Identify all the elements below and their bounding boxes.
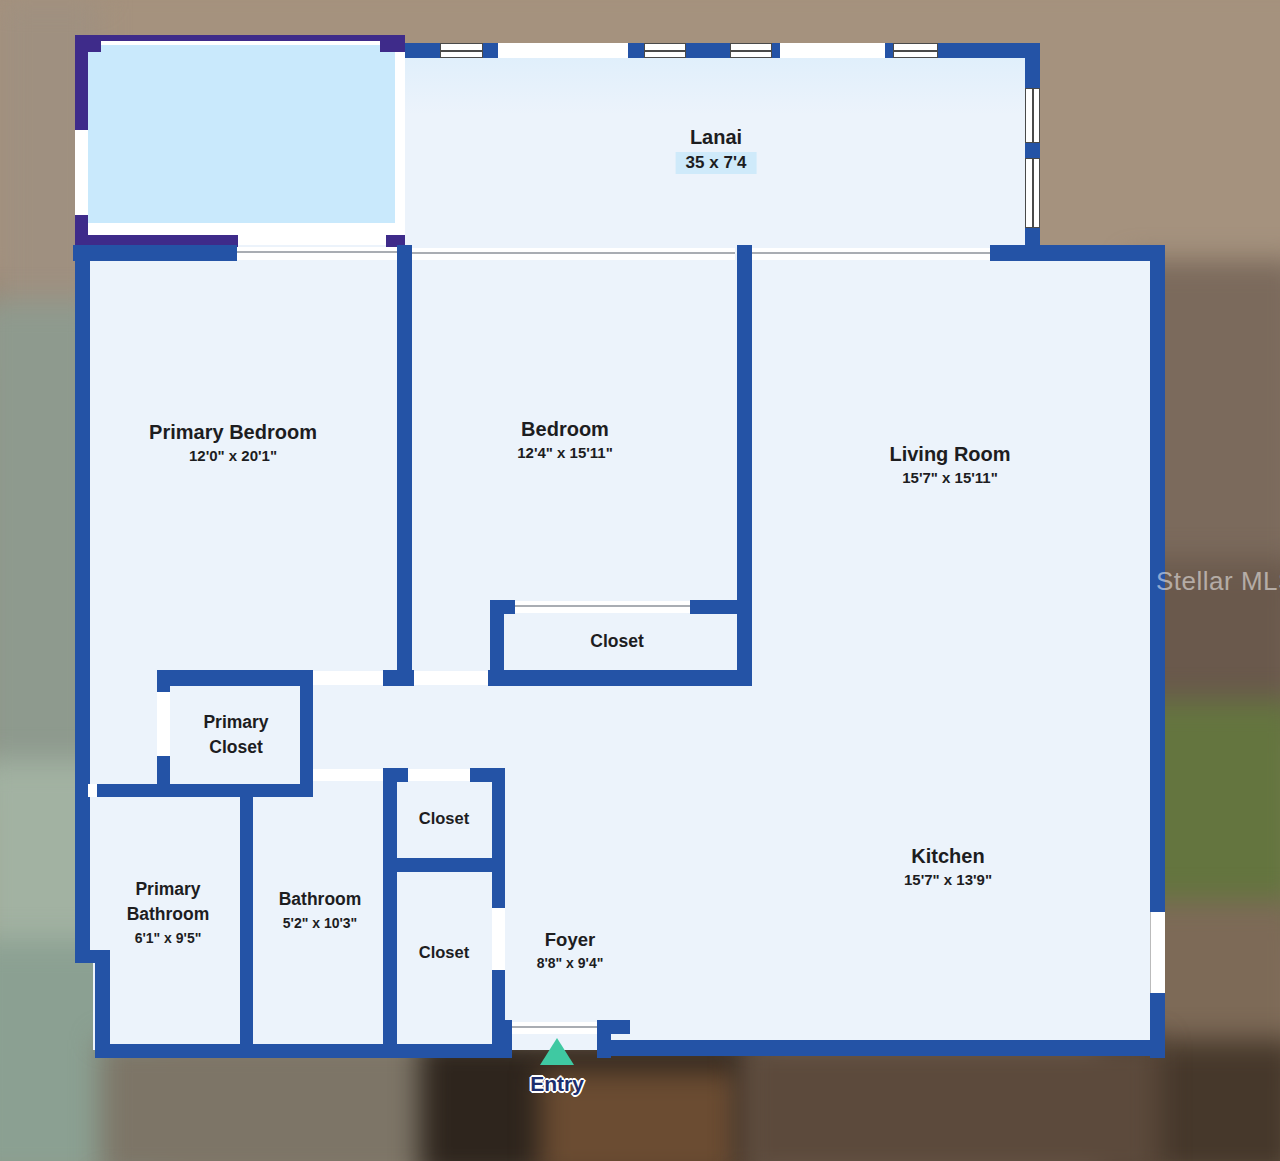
wall-segment (483, 43, 498, 58)
room-label-primary-bedroom: Primary Bedroom 12'0" x 20'1" (149, 420, 317, 467)
wall-segment (611, 1040, 1165, 1056)
room-name: Closet (419, 806, 469, 831)
room-label-bathroom: Bathroom 5'2" x 10'3" (279, 887, 362, 934)
room-name: Kitchen (904, 844, 992, 869)
patio-wall-segment (75, 35, 88, 130)
door-opening (408, 769, 470, 781)
room-label-hall-closet-upper: Closet (419, 806, 469, 831)
room-dims: 8'8" x 9'4" (537, 952, 604, 974)
door-opening (492, 908, 505, 970)
wall-segment (95, 1044, 512, 1058)
wall-segment (300, 670, 313, 797)
sliding-door (237, 247, 397, 260)
sliding-door (752, 248, 992, 260)
room-dims: 35 x 7'4 (676, 152, 757, 174)
room-name: Primary Closet (177, 710, 295, 760)
floorplan: Lanai 35 x 7'4 Primary Bedroom 12'0" x 2… (0, 0, 1280, 1161)
entry-arrow-icon (540, 1038, 574, 1065)
door-opening (414, 671, 488, 685)
wall-segment (990, 245, 1017, 261)
window (1025, 158, 1040, 228)
window (893, 43, 938, 58)
wall-segment (690, 600, 745, 614)
room-label-primary-bathroom: Primary Bathroom 6'1" x 9'5" (98, 877, 238, 949)
door-opening (88, 784, 97, 797)
window (730, 43, 772, 58)
room-dims: 12'0" x 20'1" (149, 445, 317, 467)
wall-segment (1025, 143, 1040, 158)
door-opening (313, 769, 383, 781)
room-label-primary-closet: Primary Closet (177, 710, 295, 760)
wall-segment (492, 768, 505, 872)
room-dims: 15'7" x 15'11" (889, 467, 1010, 489)
room-label-hall-closet-lower: Closet (419, 940, 469, 965)
wall-segment (737, 245, 752, 686)
sliding-door (412, 248, 735, 260)
room-name: Lanai (690, 125, 742, 150)
room-label-bedroom: Bedroom 12'4" x 15'11" (517, 417, 613, 464)
room-dims: 5'2" x 10'3" (279, 912, 362, 934)
room-dims: 12'4" x 15'11" (517, 442, 613, 464)
room-name: Closet (419, 940, 469, 965)
wall-segment (1025, 43, 1040, 88)
room-name: Bathroom (279, 887, 362, 912)
window (644, 43, 686, 58)
wall-segment (383, 768, 397, 1044)
wall-segment (488, 670, 752, 686)
wall-segment (686, 43, 730, 58)
room-label-bedroom-closet: Closet (590, 629, 643, 654)
wall-segment (492, 970, 505, 1044)
wall-segment (157, 784, 313, 797)
patio-wall-segment (75, 35, 405, 41)
entry-label: Entry (530, 1072, 584, 1096)
room-name: Foyer (537, 927, 604, 952)
wall-segment (240, 784, 253, 1050)
room-name: Living Room (889, 442, 1010, 467)
room-label-kitchen: Kitchen 15'7" x 13'9" (904, 844, 992, 891)
room-name: Primary Bathroom (98, 877, 238, 927)
room-dims-lanai: 35 x 7'4 (676, 152, 757, 174)
wall-segment (383, 670, 414, 686)
wall-segment (73, 245, 237, 261)
wall-opening (780, 43, 885, 58)
door-opening (157, 692, 170, 756)
watermark-stellar-mls: Stellar MLS (1156, 566, 1280, 597)
wall-segment (772, 43, 780, 58)
wall-segment (1015, 245, 1165, 261)
wall-segment (397, 245, 412, 686)
walls-layer (0, 0, 1280, 1161)
wall-opening (1150, 912, 1165, 993)
wall-segment (95, 950, 110, 1058)
room-name: Bedroom (517, 417, 613, 442)
patio-wall-segment (380, 35, 405, 52)
room-dims: 15'7" x 13'9" (904, 869, 992, 891)
window (440, 43, 483, 58)
wall-segment (75, 245, 90, 963)
wall-segment (885, 43, 893, 58)
window (1025, 88, 1040, 143)
wall-segment (492, 870, 505, 908)
wall-segment (628, 43, 644, 58)
wall-segment (383, 768, 408, 782)
wall-opening (498, 43, 628, 58)
room-label-lanai: Lanai (690, 125, 742, 150)
sliding-door (512, 1022, 597, 1034)
room-name: Closet (590, 629, 643, 654)
wall-segment (157, 670, 170, 692)
room-label-living-room: Living Room 15'7" x 15'11" (889, 442, 1010, 489)
sliding-door (515, 601, 690, 613)
room-label-foyer: Foyer 8'8" x 9'4" (537, 927, 604, 974)
room-name: Primary Bedroom (149, 420, 317, 445)
door-opening (313, 671, 383, 685)
wall-segment (597, 1020, 611, 1058)
room-dims: 6'1" x 9'5" (98, 927, 238, 949)
wall-segment (383, 858, 505, 872)
wall-segment (157, 670, 313, 686)
wall-segment (405, 43, 440, 58)
wall-segment (97, 784, 157, 797)
